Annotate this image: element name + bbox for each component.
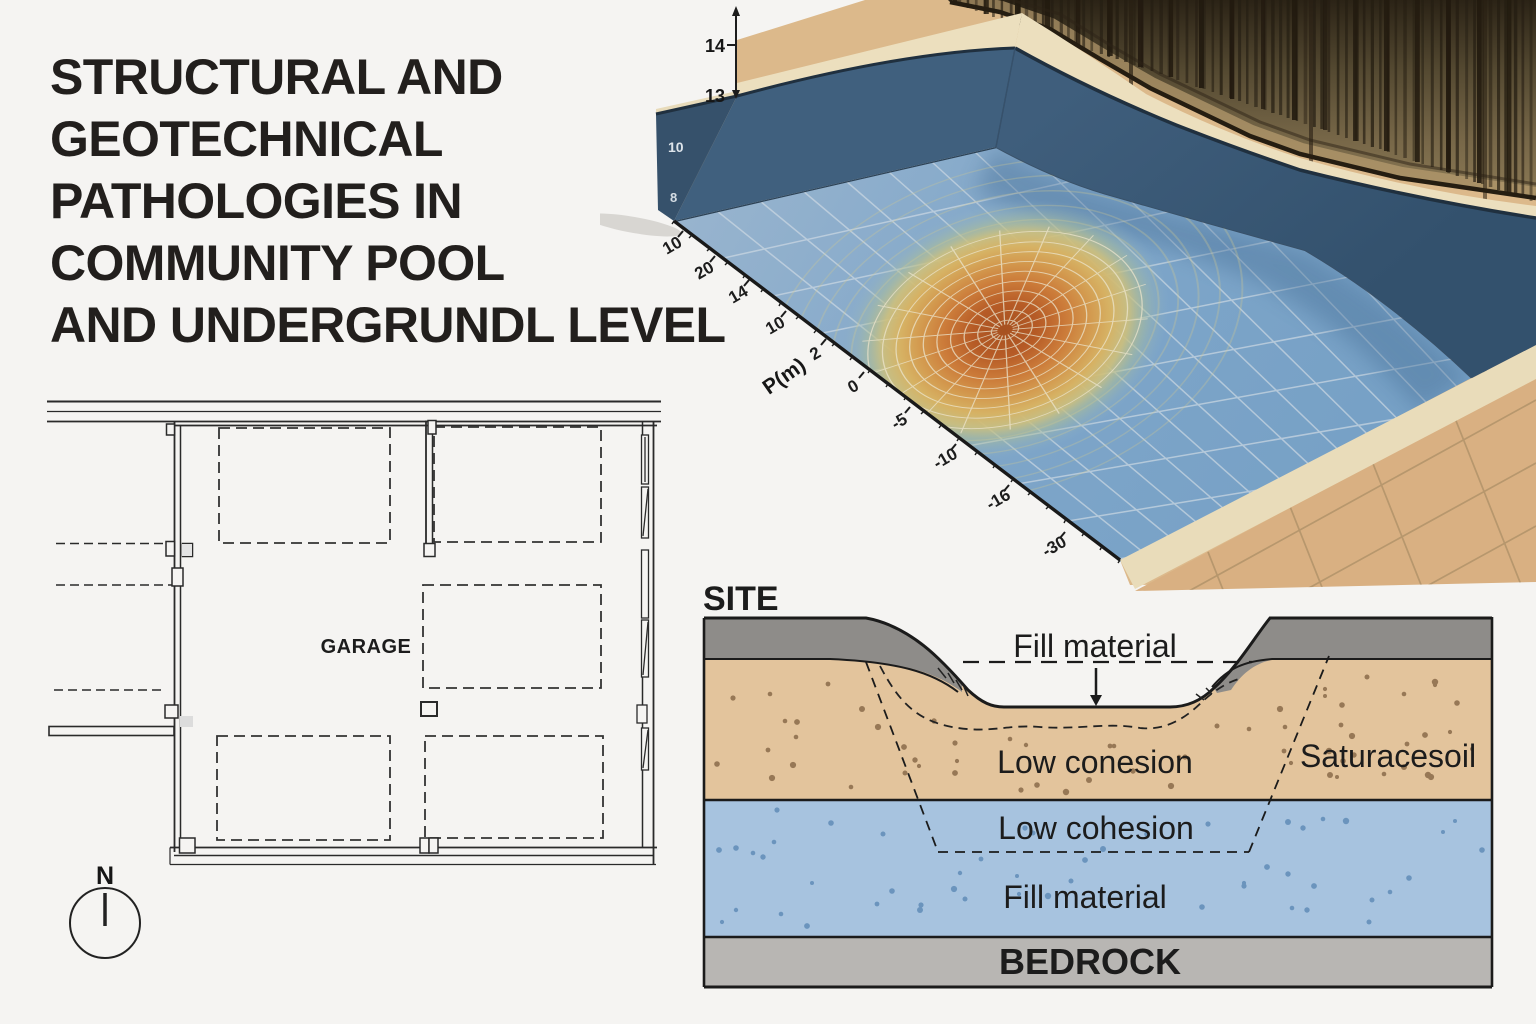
svg-text:BEDROCK: BEDROCK: [999, 941, 1181, 982]
svg-text:Low conesion: Low conesion: [997, 744, 1193, 780]
svg-text:SITE: SITE: [703, 580, 779, 618]
svg-text:0: 0: [844, 376, 862, 397]
svg-text:-10: -10: [930, 444, 961, 473]
svg-text:14: 14: [725, 281, 751, 307]
svg-text:13: 13: [705, 86, 725, 106]
svg-text:-5: -5: [888, 409, 911, 433]
svg-text:Fill material: Fill material: [1013, 628, 1177, 664]
svg-text:10: 10: [762, 312, 788, 338]
svg-text:2: 2: [806, 343, 824, 364]
svg-text:GARAGE: GARAGE: [321, 636, 412, 658]
svg-text:10: 10: [668, 139, 684, 155]
svg-text:8: 8: [670, 190, 677, 205]
svg-text:N: N: [96, 862, 114, 890]
svg-text:14: 14: [705, 36, 725, 56]
svg-text:-30: -30: [1039, 532, 1070, 561]
svg-text:Saturacesoil: Saturacesoil: [1300, 738, 1476, 774]
svg-text:Low cohesion: Low cohesion: [998, 810, 1194, 846]
svg-text:20: 20: [691, 257, 717, 283]
svg-text:-16: -16: [983, 485, 1014, 514]
svg-text:Fill material: Fill material: [1003, 879, 1167, 915]
svg-text:P(m): P(m): [759, 354, 810, 400]
